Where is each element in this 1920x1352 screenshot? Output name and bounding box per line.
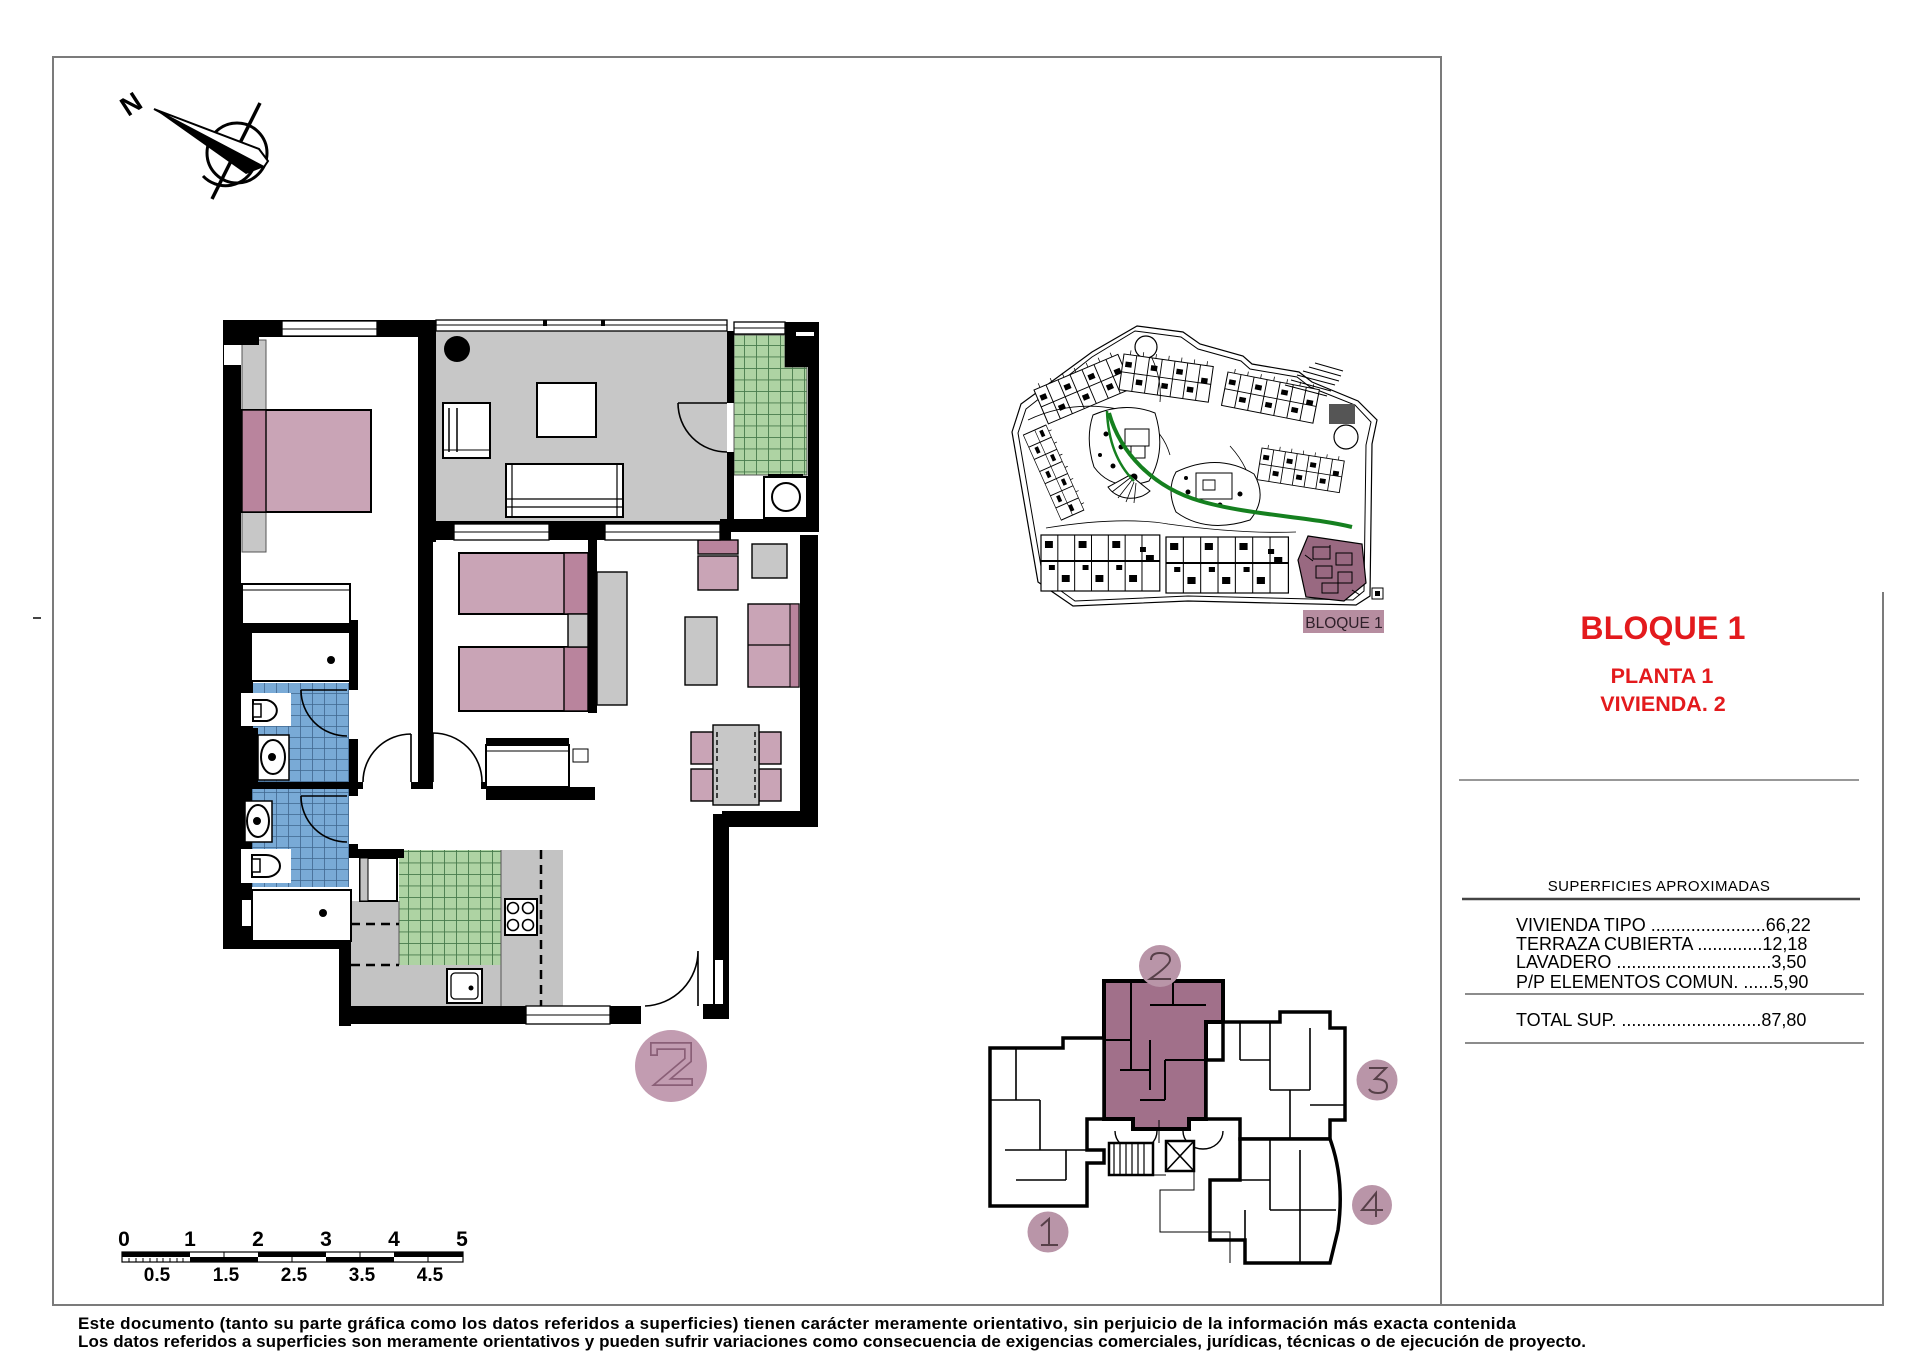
svg-text:SUPERFICIES APROXIMADAS: SUPERFICIES APROXIMADAS <box>1548 878 1771 895</box>
svg-text:VIVIENDA. 2: VIVIENDA. 2 <box>1600 692 1725 716</box>
svg-text:2: 2 <box>252 1228 264 1251</box>
svg-text:1.5: 1.5 <box>213 1265 240 1286</box>
svg-text:TOTAL SUP. ...................: TOTAL SUP. ............................8… <box>1516 1010 1806 1030</box>
svg-text:4: 4 <box>388 1228 400 1251</box>
svg-text:BLOQUE 1: BLOQUE 1 <box>1580 610 1745 646</box>
svg-text:4.5: 4.5 <box>417 1265 444 1286</box>
svg-text:N: N <box>115 86 148 122</box>
svg-text:VIVIENDA TIPO ................: VIVIENDA TIPO .......................66,… <box>1516 915 1811 935</box>
svg-text:3.5: 3.5 <box>349 1265 376 1286</box>
svg-text:BLOQUE 1: BLOQUE 1 <box>1305 615 1383 632</box>
svg-text:0: 0 <box>118 1228 130 1251</box>
svg-text:2.5: 2.5 <box>281 1265 308 1286</box>
svg-text:Los datos referidos a superfic: Los datos referidos a superficies son me… <box>78 1332 1586 1351</box>
svg-text:P/P ELEMENTOS COMUN. ......5,9: P/P ELEMENTOS COMUN. ......5,90 <box>1516 972 1808 992</box>
svg-text:0.5: 0.5 <box>144 1265 171 1286</box>
svg-text:PLANTA 1: PLANTA 1 <box>1611 664 1714 688</box>
svg-text:TERRAZA CUBIERTA .............: TERRAZA CUBIERTA .............12,18 <box>1516 934 1807 954</box>
svg-text:1: 1 <box>184 1228 196 1251</box>
svg-text:3: 3 <box>320 1228 332 1251</box>
svg-text:LAVADERO .....................: LAVADERO ...............................… <box>1516 952 1806 972</box>
svg-text:5: 5 <box>456 1228 468 1251</box>
svg-text:Este documento (tanto su parte: Este documento (tanto su parte gráfica c… <box>78 1314 1517 1333</box>
